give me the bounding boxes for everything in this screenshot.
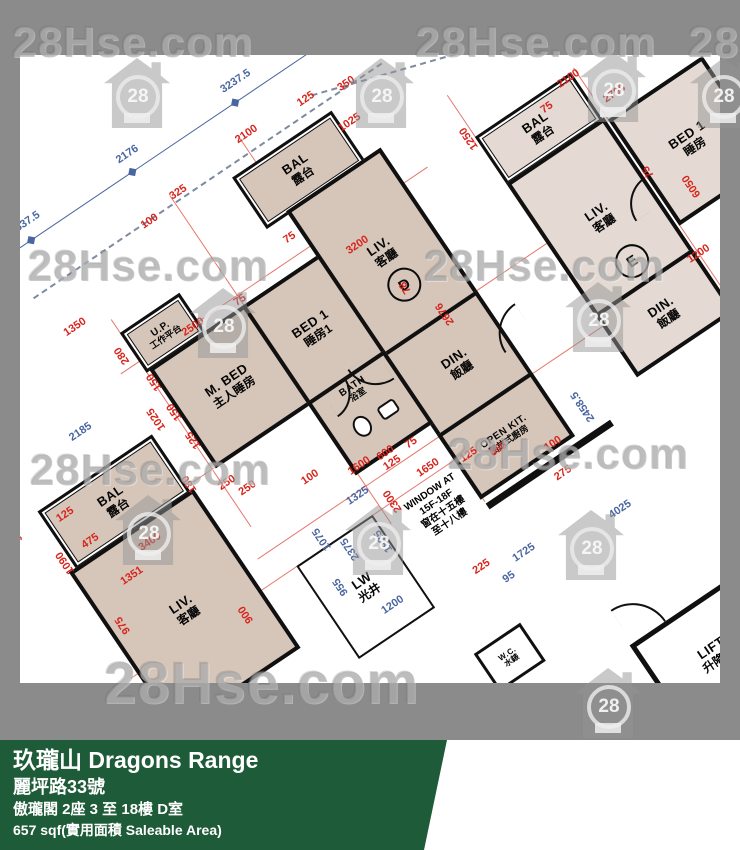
dim-label-blue: 2185: [67, 420, 94, 444]
unit-e-letter: E: [623, 251, 641, 271]
estate-area: 657 sqf(實用面積 Saleable Area): [13, 821, 460, 841]
dim-label-red: 225: [470, 557, 492, 577]
dim-label-red: 905: [20, 523, 25, 545]
dim-label-red: 1350: [61, 315, 88, 339]
dim-label-blue: 1325: [344, 484, 371, 508]
estate-address: 麗坪路33號: [13, 775, 460, 799]
dim-label-red: 2100: [233, 122, 260, 146]
dim-label-red: 250: [216, 473, 238, 493]
lot-boundary-line: [311, 55, 465, 96]
plan-rotated-group: BAL露台 U.P.工作平台 M. BED主人睡房 BED 1睡房1 LIV.客…: [20, 55, 720, 683]
logo-number: 28: [598, 696, 619, 718]
dimension-marker: [128, 168, 136, 176]
estate-unit: 傲瓏閣 2座 3 至 18樓 D室: [13, 799, 460, 821]
dim-label-red: 325: [167, 182, 189, 202]
estate-title: 玖瓏山 Dragons Range: [13, 746, 460, 775]
dimension-marker: [231, 99, 239, 107]
floorplan-page: BAL露台 U.P.工作平台 M. BED主人睡房 BED 1睡房1 LIV.客…: [0, 0, 740, 850]
dim-label-red: 75: [281, 229, 298, 246]
house-door: [595, 723, 620, 734]
dim-label-blue: 95: [500, 569, 517, 586]
dim-label-blue: 1725: [510, 541, 537, 565]
dim-label-red: 2700: [601, 82, 628, 106]
footer-bar: 玖瓏山 Dragons Range 麗坪路33號 傲瓏閣 2座 3 至 18樓 …: [0, 740, 740, 850]
dim-label-red: 100: [299, 467, 321, 487]
dim-label-blue: 3237.5: [218, 67, 253, 96]
floorplan-image[interactable]: BAL露台 U.P.工作平台 M. BED主人睡房 BED 1睡房1 LIV.客…: [20, 55, 720, 683]
dim-label-red: 1025: [336, 111, 363, 135]
listing-info-panel: 玖瓏山 Dragons Range 麗坪路33號 傲瓏閣 2座 3 至 18樓 …: [0, 740, 460, 850]
dim-label-blue: 2458.5: [569, 389, 598, 424]
dim-label-red: 125: [295, 89, 317, 109]
room-meter-cupboard: W.C.水錶: [474, 623, 546, 683]
logo-28-badge: 28: [587, 685, 631, 729]
dim-label-blue: 2176: [114, 142, 141, 166]
dim-label-blue: 4025: [607, 498, 634, 522]
dimension-marker: [27, 236, 35, 244]
dim-label-red: 275: [552, 463, 574, 483]
dim-label-red: 250: [237, 478, 259, 498]
